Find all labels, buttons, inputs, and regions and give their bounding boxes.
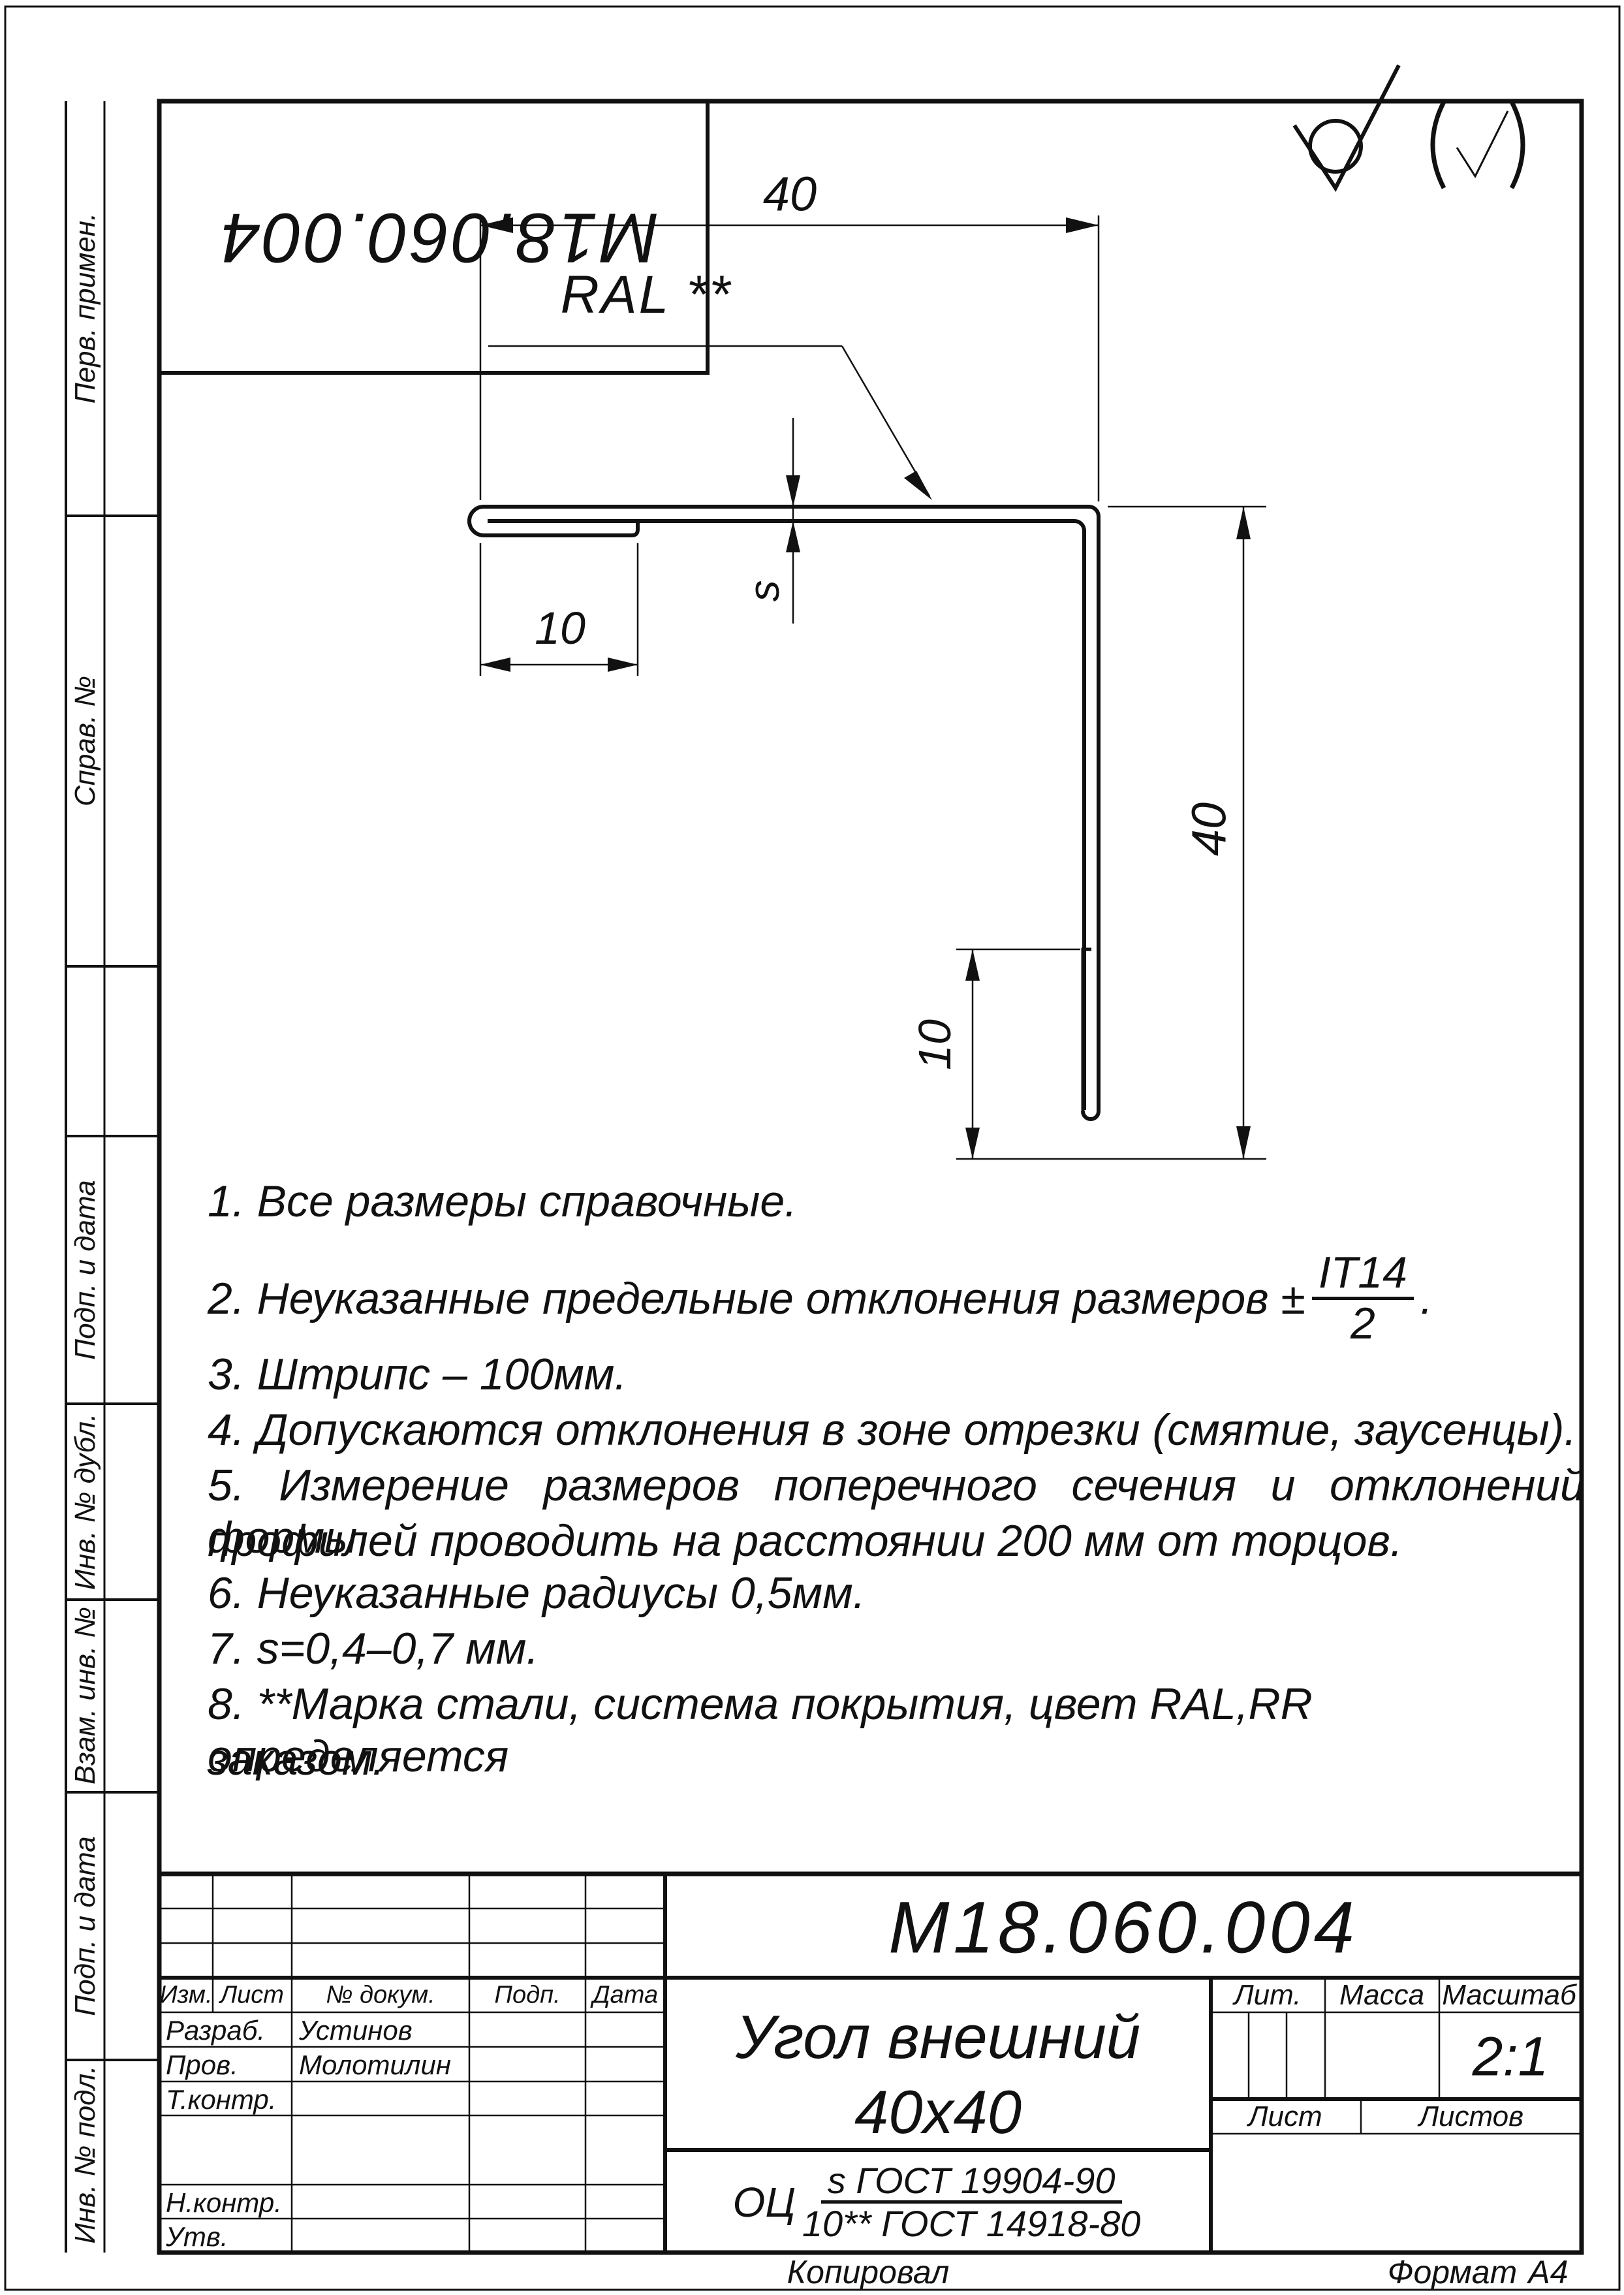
title-designation: М18.060.004 [888, 1886, 1358, 1970]
format-label: Формат [1388, 2253, 1518, 2291]
material-prefix: ОЦ [733, 2178, 796, 2226]
dim-hem-bottom: 10 [909, 1019, 961, 1070]
side-label-vzam-inv-no: Взам. инв. № [69, 1607, 102, 1784]
prov-name: Молотилин [299, 2050, 451, 2081]
note-4: 4. Допускаются отклонения в зоне отрезки… [208, 1404, 1585, 1456]
surface-finish-icon [1294, 65, 1399, 188]
drawing-sheet: М18.060.004 Перв. примен. Справ. № Подп.… [0, 0, 1624, 2295]
note-2-fraction: IT14 2 [1312, 1250, 1414, 1347]
drawing-linework [0, 0, 1624, 2295]
row-utv: Утв. [166, 2221, 228, 2253]
material-numerator: s ГОСТ 19904-90 [821, 2162, 1122, 2204]
side-label-sprav-no: Справ. № [69, 676, 102, 806]
note-1: 1. Все размеры справочные. [208, 1175, 1585, 1227]
col-docnum: № докум. [326, 1982, 435, 2010]
note-2: 2. Неуказанные предельные отклонения раз… [208, 1250, 1585, 1347]
copied-label: Копировал [787, 2253, 950, 2291]
col-list: Лист [220, 1982, 284, 2010]
material-fraction: s ГОСТ 19904-90 10** ГОСТ 14918-80 [802, 2162, 1141, 2242]
note-2-period: . [1420, 1273, 1433, 1325]
note-3: 3. Штрипс – 100мм. [208, 1348, 1585, 1401]
side-label-inv-no-podl: Инв. № подл. [69, 2065, 102, 2243]
coating-label: RAL ** [561, 264, 732, 326]
razrab-name: Устинов [299, 2015, 413, 2046]
part-name-line1: Угол внешний [736, 2002, 1140, 2072]
note-2-numerator: IT14 [1312, 1250, 1414, 1300]
leader-ral [488, 346, 932, 500]
material-cell: ОЦ s ГОСТ 19904-90 10** ГОСТ 14918-80 [672, 2155, 1208, 2249]
note-2-denominator: 2 [1351, 1300, 1375, 1346]
masshtab-label: Масштаб [1442, 1979, 1576, 2012]
side-label-inv-no-dubl: Инв. № дубл. [69, 1414, 102, 1591]
dimension-10-bottom [956, 949, 1080, 1159]
row-prov: Пров. [166, 2050, 238, 2081]
page-border [5, 7, 1619, 2290]
col-podp: Подп. [494, 1982, 560, 2010]
note-8-line2: заказом. [208, 1733, 1585, 1786]
list-label: Лист [1248, 2100, 1322, 2133]
massa-label: Масса [1339, 1979, 1424, 2012]
row-razrab: Разраб. [166, 2015, 265, 2046]
lit-label: Лит. [1234, 1979, 1301, 2012]
scale-value: 2:1 [1473, 2025, 1549, 2089]
dim-width-top: 40 [763, 166, 817, 222]
format-value: А4 [1528, 2253, 1568, 2291]
col-izm: Изм. [159, 1982, 212, 2010]
note-7: 7. s=0,4–0,7 мм. [208, 1622, 1585, 1675]
row-tkontr: Т.контр. [166, 2084, 276, 2115]
side-label-podp-i-data-1: Подп. и дата [69, 1180, 102, 1359]
note-2-text: 2. Неуказанные предельные отклонения раз… [208, 1273, 1305, 1325]
dim-hem-top: 10 [535, 602, 586, 654]
note-5-line2: профилей проводить на расстоянии 200 мм … [208, 1515, 1585, 1567]
listov-label: Листов [1419, 2100, 1523, 2133]
surface-finish-others-icon [1433, 102, 1523, 188]
dim-thickness: s [739, 580, 789, 602]
side-label-podp-i-data-2: Подп. и дата [69, 1836, 102, 2016]
material-denominator: 10** ГОСТ 14918-80 [802, 2204, 1141, 2242]
note-6: 6. Неуказанные радиусы 0,5мм. [208, 1567, 1585, 1619]
part-name-line2: 40х40 [854, 2077, 1022, 2147]
row-nkontr: Н.контр. [166, 2187, 282, 2219]
side-label-perv-primen: Перв. примен. [69, 213, 102, 404]
dim-height-right: 40 [1181, 802, 1237, 856]
col-data: Дата [593, 1982, 658, 2010]
